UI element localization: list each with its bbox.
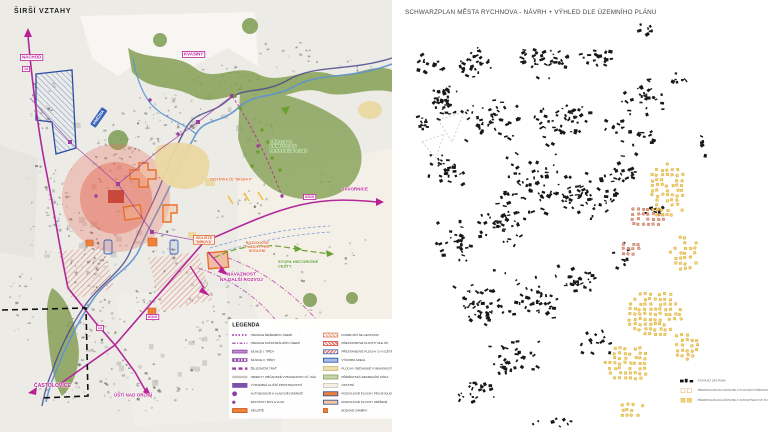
legend-row: AUTOBUSOVÉ A VLAKOVÉ NÁDRAŽÍ: [232, 389, 316, 397]
legend-label: ŽELEZNIČNÍ TRAŤ: [251, 367, 277, 371]
legend-swatch: [323, 408, 328, 413]
legend-row: PŘEDPOKLÁDANÁ ZÁSTAVBA V ZASTAVITELNÝCH …: [680, 395, 768, 405]
wider-relations-map: ŠIRŠÍ VZTAHY NÁCHOD 14 KVASINY KNĚŽNA PŘ…: [0, 0, 392, 432]
road-badge-14-south: 14: [96, 325, 104, 331]
legend-title: LEGENDA: [232, 321, 393, 327]
legend-swatch: [232, 343, 247, 344]
legend-panel: LEGENDA HRANICE ŘEŠENÉHO ÚZEMÍ HRANICE K…: [229, 319, 396, 419]
legend-label: OSTATNÍ: [341, 383, 354, 387]
legend-left-column: HRANICE ŘEŠENÉHO ÚZEMÍ HRANICE KATASTRÁL…: [232, 331, 316, 415]
legend-label: PŘEDPOKLÁDANÁ ZÁSTAVBA V PLOCHÁCH PŘESTA…: [698, 389, 768, 392]
legend-label: BODOVÉ ZÁMĚRY: [341, 409, 367, 413]
legend-label: PLOCHY OBČANSKÉ VYBAVENOSTI: [341, 367, 393, 371]
legend-swatch: [680, 378, 694, 384]
legend-label: HRANICE ŘEŠENÉHO ÚZEMÍ: [251, 333, 292, 337]
legend-row: HRANICE ŘEŠENÉHO ÚZEMÍ: [232, 331, 316, 339]
legend-row: PŘEDPOKLÁDANÁ ZÁSTAVBA V PLOCHÁCH PŘESTA…: [680, 386, 768, 396]
schwarzplan-legend: STÁVAJÍCÍ ZÁSTAVBA PŘEDPOKLÁDANÁ ZÁSTAVB…: [680, 376, 768, 405]
legend-swatch: [232, 376, 247, 378]
legend-label: SÍDLIŠTĚ: [251, 409, 264, 413]
road-badge-14-north: 14: [22, 66, 30, 72]
planned-buildings-redevelopment: [622, 208, 665, 256]
legend-label: ZASTÁVKY BUS A VLAK: [251, 400, 285, 404]
legend-swatch: [323, 349, 338, 354]
right-map-title: SCHWARZPLAN MĚSTA RYCHNOVA - NÁVRH + VÝH…: [405, 9, 657, 16]
legend-swatch: [323, 391, 338, 396]
legend-swatch: [232, 391, 237, 396]
label-further-development: NÁVAZNOST NA DALŠÍ ROZVOJ: [220, 272, 263, 282]
left-map-title: ŠIRŠÍ VZTAHY: [14, 8, 71, 15]
legend-row: OBJEKTY OBČANSKÉ VYBAVENOSTI VČ. ZÁZ.: [232, 373, 316, 381]
label-castolovice: ČASTOLOVICE: [34, 383, 71, 389]
label-usti-nad-orlici: ÚSTÍ NAD ORLICÍ: [114, 393, 152, 398]
label-sidliste-mirova: SÍDLIŠTĚ "MÍROVÁ": [193, 235, 215, 245]
legend-row: VÝZNAMNÁ ULIČNÍ PROSTRANSTVÍ: [232, 381, 316, 389]
legend-swatch: [232, 408, 247, 413]
legend-label: ROZVOJOVÉ PLOCHY SMÍŠENÉ: [341, 400, 387, 404]
label-javornice: JAVORNICE: [342, 187, 368, 192]
legend-row: ZASTÁVKY BUS A VLAK: [232, 398, 316, 406]
legend-label: FORMUJÍCÍ SE CENTRUM: [341, 333, 378, 337]
legend-label: AUTOBUSOVÉ A VLAKOVÉ NÁDRAŽÍ: [251, 392, 303, 396]
legend-swatch: [232, 334, 247, 336]
legend-label: STÁVAJÍCÍ ZÁSTAVBA: [698, 379, 726, 382]
legend-label: VÝROBNÍ AREÁL: [341, 358, 365, 362]
label-nachod: NÁCHOD: [20, 54, 43, 61]
legend-label: PŘEDPOKLÁDANÁ ZÁSTAVBA V ZASTAVITELNÝCH …: [698, 399, 768, 402]
legend-swatch: [323, 358, 338, 363]
label-housing-development: ROZVOJOVÉ PLOCHY PRO BYDLENÍ: [245, 241, 270, 253]
legend-swatch: [232, 358, 247, 362]
legend-swatch: [323, 341, 338, 346]
legend-swatch: [232, 400, 235, 403]
legend-swatch: [323, 400, 338, 405]
legend-swatch: [323, 374, 338, 379]
legend-label: SILNICE I. TŘÍDY: [251, 350, 275, 354]
legend-label: ROZVOJOVÉ PLOCHY PRO BYDLENÍ: [341, 392, 394, 396]
legend-swatch: [323, 332, 338, 337]
legend-row: SILNICE I. TŘÍDY: [232, 347, 316, 355]
label-recreation-access: PŘÍSTUP K PŘÍMĚSTSKÉ REKREAČNÍ ZÓNĚ: [270, 140, 319, 153]
legend-label: PŘESTAVBOVÉ PLOCHY DLE ÚP: [341, 341, 388, 345]
road-badge-319-east: II/319: [303, 194, 316, 200]
existing-buildings: [416, 23, 707, 427]
legend-swatch: [680, 397, 694, 403]
legend-swatch: [323, 383, 338, 388]
legend-swatch: [232, 383, 247, 388]
faint-outlines: [422, 112, 464, 158]
legend-label: HRANICE KATASTRÁLNÍHO ÚZEMÍ: [251, 341, 300, 345]
road-badge-319-south: II/319: [146, 314, 159, 320]
legend-swatch: [323, 366, 338, 371]
legend-swatch: [680, 388, 694, 394]
legend-label: VÝZNAMNÁ ULIČNÍ PROSTRANSTVÍ: [251, 383, 303, 387]
legend-row: STÁVAJÍCÍ ZÁSTAVBA: [680, 376, 768, 386]
label-kvasiny: KVASINY: [182, 51, 205, 58]
label-rail-stop: ZASTÁVKA ŽD "ŠKODA II": [210, 178, 252, 182]
historic-core: [62, 144, 170, 252]
legend-swatch: [232, 350, 247, 354]
poster-canvas: ŠIRŠÍ VZTAHY NÁCHOD 14 KVASINY KNĚŽNA PŘ…: [0, 0, 768, 432]
legend-row: SÍDLIŠTĚ: [232, 406, 316, 414]
legend-row: SILNICE II. TŘÍDY: [232, 356, 316, 364]
legend-label: PŘÍMĚSTSKÁ REKREAČNÍ ZÓNA: [341, 375, 388, 379]
label-historic-route: STOPA HISTORICKÉ CESTY: [278, 260, 324, 269]
legend-swatch: [232, 367, 247, 369]
legend-row: HRANICE KATASTRÁLNÍHO ÚZEMÍ: [232, 339, 316, 347]
schwarzplan-graphics: [392, 0, 768, 432]
legend-label: OBJEKTY OBČANSKÉ VYBAVENOSTI VČ. ZÁZ.: [251, 375, 317, 379]
legend-label: SILNICE II. TŘÍDY: [251, 358, 276, 362]
schwarzplan-map: SCHWARZPLAN MĚSTA RYCHNOVA - NÁVRH + VÝH…: [392, 0, 768, 432]
legend-row: ŽELEZNIČNÍ TRAŤ: [232, 364, 316, 372]
